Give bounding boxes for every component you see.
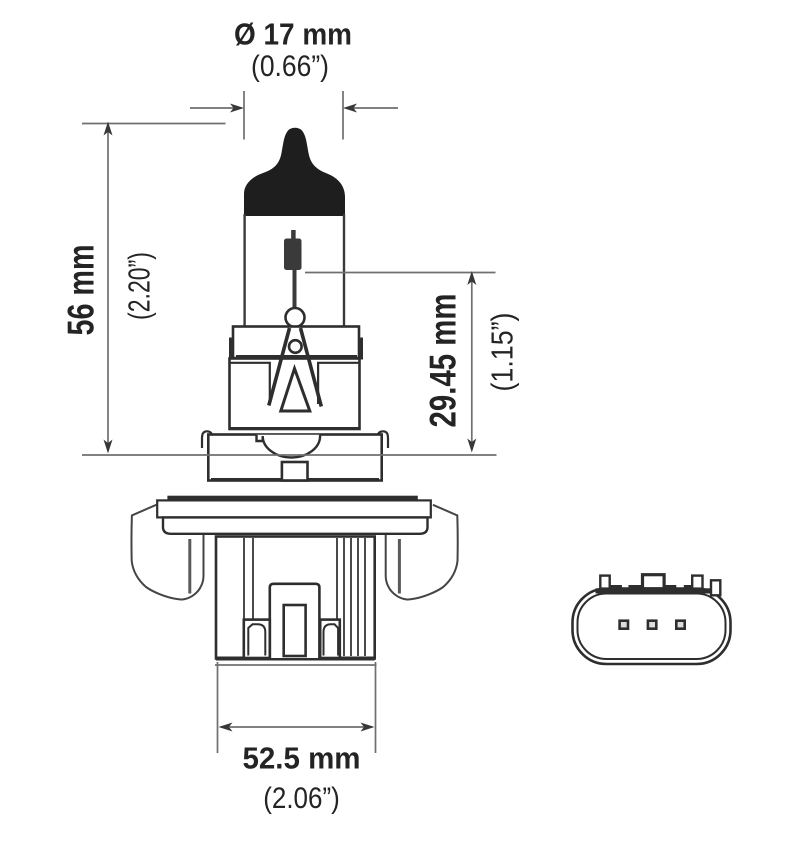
- svg-text:Ø 17 mm: Ø 17 mm: [234, 17, 352, 52]
- svg-text:(1.15”): (1.15”): [486, 313, 520, 392]
- svg-text:(2.20”): (2.20”): [122, 252, 157, 320]
- svg-text:56 mm: 56 mm: [61, 245, 102, 336]
- svg-text:(0.66”): (0.66”): [251, 50, 329, 83]
- svg-text:(2.06”): (2.06”): [263, 782, 340, 815]
- svg-text:29.45 mm: 29.45 mm: [423, 294, 464, 428]
- svg-text:52.5 mm: 52.5 mm: [243, 741, 361, 776]
